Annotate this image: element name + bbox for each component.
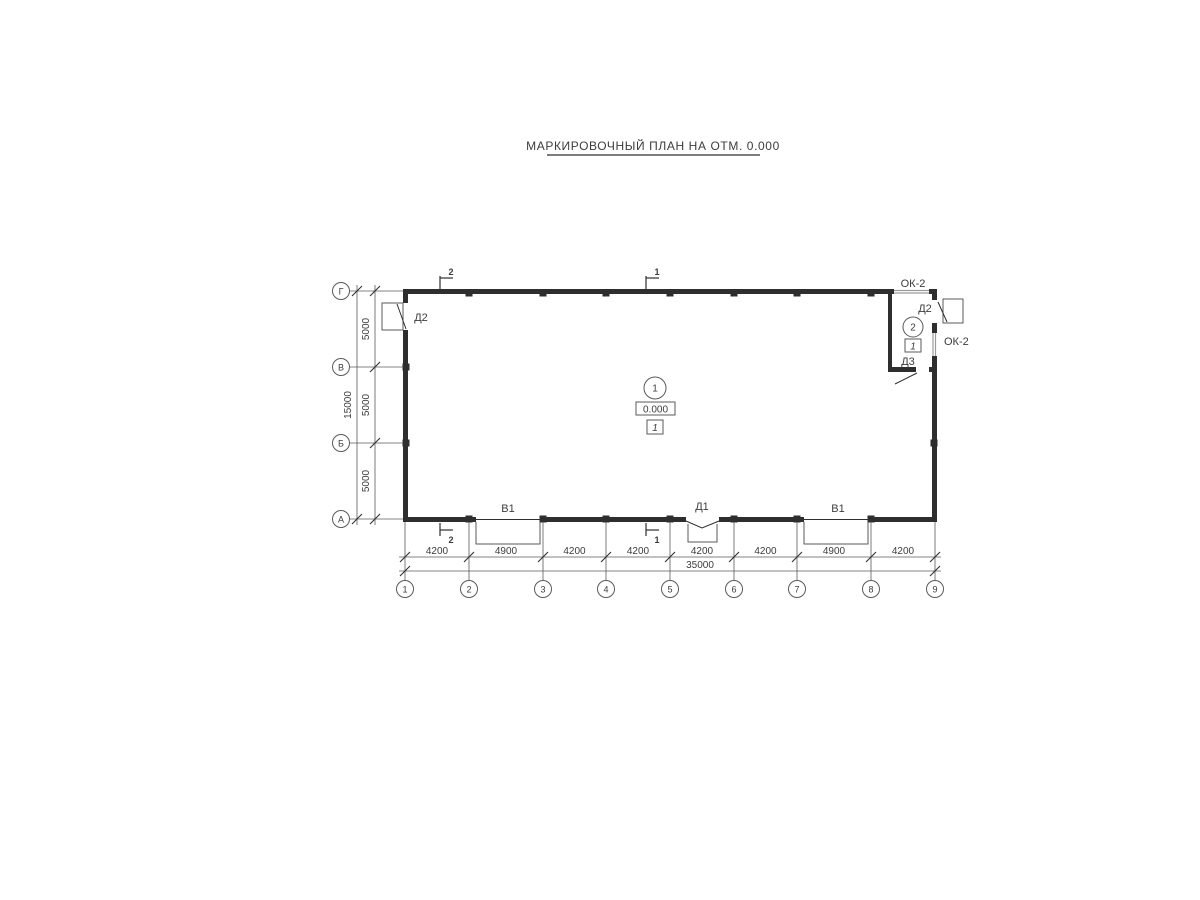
dimensions-bottom: 4200 4900 4200 4200 4200 4200 4900 4200 … xyxy=(399,522,941,581)
axis-label: 3 xyxy=(540,585,545,595)
dim-total: 35000 xyxy=(686,560,714,571)
axis-label: 4 xyxy=(603,585,608,595)
dim-value: 4200 xyxy=(754,546,777,557)
wall-left-1 xyxy=(403,289,408,303)
dimensions-left: 5000 5000 5000 15000 xyxy=(343,285,403,525)
axis-label: Б xyxy=(338,439,344,449)
column xyxy=(794,516,801,523)
wall-right-3 xyxy=(932,356,937,522)
axis-label: 9 xyxy=(932,585,937,595)
axis-label: 6 xyxy=(731,585,736,595)
wall-left-2 xyxy=(403,330,408,522)
gate-apron xyxy=(804,522,868,544)
column xyxy=(466,516,473,523)
dim-value: 5000 xyxy=(361,469,372,492)
gate-left-label: В1 xyxy=(501,503,514,515)
wall-bottom-1 xyxy=(403,517,476,522)
elevation-value: 0.000 xyxy=(643,405,668,416)
axis-label: В xyxy=(338,363,344,373)
dim-value: 4200 xyxy=(563,546,586,557)
gate-left: В1 xyxy=(476,503,540,544)
section-marks: 2 1 2 1 xyxy=(440,267,660,545)
wall-right-1 xyxy=(932,289,937,300)
room-marker-small: 2 1 xyxy=(903,317,923,353)
column xyxy=(794,290,801,297)
section-number: 2 xyxy=(448,535,453,545)
dim-value: 4900 xyxy=(823,546,846,557)
wall-bottom-2 xyxy=(540,517,686,522)
dim-value: 5000 xyxy=(361,317,372,340)
section-mark-2-top: 2 xyxy=(440,267,454,289)
axis-label: А xyxy=(338,515,344,525)
column xyxy=(466,290,473,297)
axis-bubbles-bottom: 1 2 3 4 5 6 7 8 9 xyxy=(397,581,944,598)
section-number: 2 xyxy=(448,267,453,277)
section-mark-1-bottom: 1 xyxy=(646,523,660,545)
column xyxy=(667,290,674,297)
drawing-sheet: МАРКИРОВОЧНЫЙ ПЛАН НА ОТМ. 0.000 xyxy=(0,0,1200,900)
plan-title-block: МАРКИРОВОЧНЫЙ ПЛАН НА ОТМ. 0.000 xyxy=(526,138,780,155)
column xyxy=(540,290,547,297)
column xyxy=(731,290,738,297)
axis-label: Г xyxy=(339,287,344,297)
axis-label: 5 xyxy=(667,585,672,595)
dim-value: 4200 xyxy=(691,546,714,557)
door-left-label: Д2 xyxy=(414,312,428,324)
axis-label: 2 xyxy=(466,585,471,595)
section-mark-2-bottom: 2 xyxy=(440,523,454,545)
dim-value: 4900 xyxy=(495,546,518,557)
dim-total: 15000 xyxy=(343,391,354,419)
column xyxy=(931,440,938,447)
gate-apron xyxy=(476,522,540,544)
door-d3-label: Д3 xyxy=(901,356,915,368)
column xyxy=(540,516,547,523)
window-top-label: ОК-2 xyxy=(901,278,926,290)
column xyxy=(731,516,738,523)
door-panel xyxy=(382,303,403,330)
section-number: 1 xyxy=(654,535,659,545)
wall-top xyxy=(403,289,894,294)
column xyxy=(603,290,610,297)
column xyxy=(603,516,610,523)
category-value: 1 xyxy=(652,423,658,434)
partition-vertical xyxy=(888,291,892,372)
section-mark-1-top: 1 xyxy=(646,267,660,289)
window-right-label: ОК-2 xyxy=(944,336,969,348)
column xyxy=(667,516,674,523)
room-number: 1 xyxy=(652,384,658,395)
axis-label: 7 xyxy=(794,585,799,595)
axis-label: 8 xyxy=(868,585,873,595)
door-right-label: Д2 xyxy=(918,303,932,315)
column xyxy=(403,364,410,371)
floor-plan-drawing: МАРКИРОВОЧНЫЙ ПЛАН НА ОТМ. 0.000 xyxy=(0,0,1200,900)
room-number: 2 xyxy=(910,323,916,334)
wall-bottom-4 xyxy=(868,517,937,522)
wall-right-2 xyxy=(932,323,937,333)
column xyxy=(868,290,875,297)
axis-label: 1 xyxy=(402,585,407,595)
door-d1-label: Д1 xyxy=(695,501,709,513)
column xyxy=(868,516,875,523)
page-title: МАРКИРОВОЧНЫЙ ПЛАН НА ОТМ. 0.000 xyxy=(526,138,780,153)
door-left-d2: Д2 xyxy=(382,303,428,330)
gate-right-label: В1 xyxy=(831,503,844,515)
dim-value: 4200 xyxy=(892,546,915,557)
door-d1: Д1 xyxy=(686,501,719,542)
partition-horizontal-2 xyxy=(929,367,937,372)
door-d1-leaves xyxy=(686,521,719,528)
door-right-d2: Д2 xyxy=(918,299,963,323)
dim-value: 5000 xyxy=(361,393,372,416)
room-marker-main: 1 0.000 1 xyxy=(636,377,675,434)
door-d1-apron xyxy=(688,524,717,542)
section-number: 1 xyxy=(654,267,659,277)
door-swing xyxy=(895,373,917,384)
gate-right: В1 xyxy=(804,503,868,544)
dim-value: 4200 xyxy=(426,546,449,557)
dim-value: 4200 xyxy=(627,546,650,557)
door-swing xyxy=(397,304,406,329)
category-value: 1 xyxy=(910,342,916,353)
column xyxy=(403,440,410,447)
